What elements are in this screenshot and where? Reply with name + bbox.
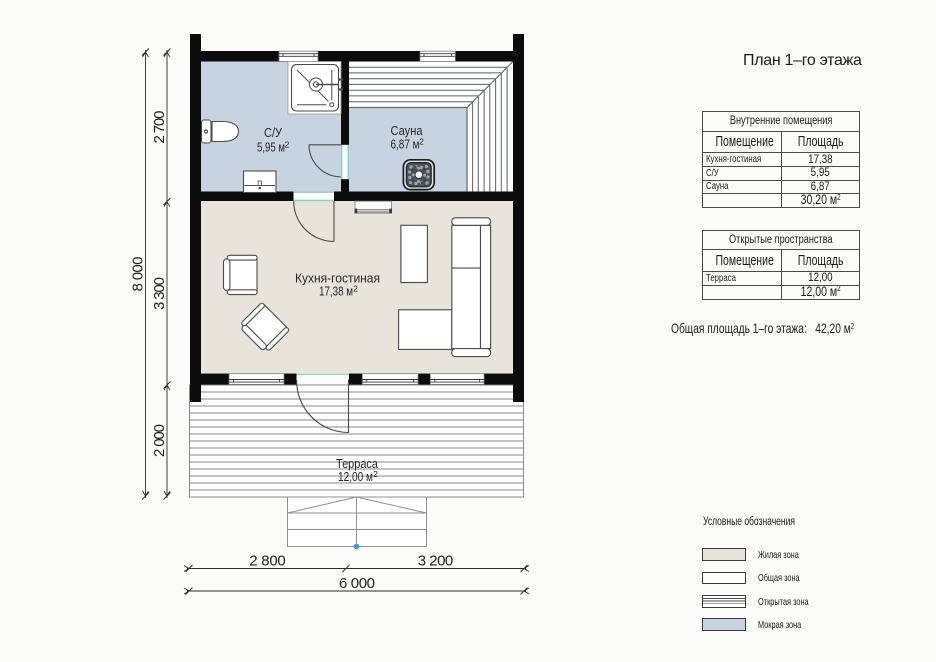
svg-text:С/У: С/У — [264, 125, 283, 140]
svg-text:2 700: 2 700 — [151, 111, 168, 144]
svg-text:2: 2 — [373, 469, 378, 479]
svg-text:17,38 м: 17,38 м — [319, 284, 353, 299]
svg-text:12,00 м: 12,00 м — [338, 469, 373, 484]
svg-text:8 000: 8 000 — [130, 257, 147, 292]
svg-text:2: 2 — [353, 284, 358, 294]
svg-text:3 300: 3 300 — [151, 277, 168, 310]
svg-text:6,87 м: 6,87 м — [391, 137, 420, 152]
svg-text:2 800: 2 800 — [249, 553, 286, 570]
svg-text:6 000: 6 000 — [339, 575, 375, 592]
svg-text:2: 2 — [419, 137, 424, 147]
svg-text:2 000: 2 000 — [151, 424, 168, 457]
svg-text:2: 2 — [285, 140, 290, 150]
svg-text:3 200: 3 200 — [418, 553, 454, 570]
svg-text:5,95 м: 5,95 м — [257, 140, 285, 155]
